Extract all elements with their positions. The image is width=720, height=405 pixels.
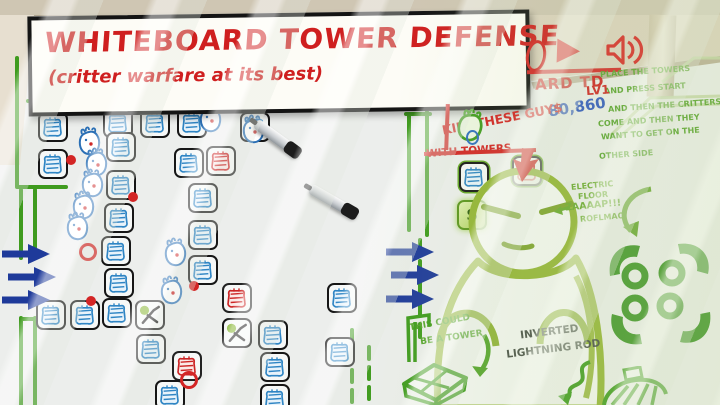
tower-scribble-icon <box>106 205 131 230</box>
game-subtitle: (critter warfare at its best) <box>48 63 323 88</box>
small-left-arrow <box>552 204 570 216</box>
entry-arrow <box>0 289 52 311</box>
squiggle-arrow <box>556 358 598 405</box>
tower-red[interactable] <box>222 283 252 313</box>
arrow-icon <box>6 266 58 288</box>
tower-slingshot[interactable] <box>222 318 252 348</box>
tower-blue[interactable] <box>104 268 134 298</box>
tower-blue[interactable] <box>258 320 288 350</box>
tower-blue[interactable] <box>38 149 68 179</box>
tower-scribble-icon <box>104 300 129 325</box>
arrow-icon <box>0 243 52 265</box>
tower-blue[interactable] <box>136 334 166 364</box>
curved-arrow-doodle <box>615 183 657 239</box>
tower-scribble-icon <box>190 257 215 282</box>
tower-scribble-icon <box>190 222 215 247</box>
slingshot-icon <box>224 320 249 345</box>
tower-scribble-icon <box>262 354 287 379</box>
game-screen: $ WHITEBOARD TOWER DEFENSE (critter warf… <box>0 0 720 405</box>
tower-blue[interactable] <box>327 283 357 313</box>
projectile-dot <box>189 281 199 291</box>
tower-scribble-icon <box>106 270 131 295</box>
tower-scribble-icon <box>138 336 163 361</box>
tower-blue[interactable] <box>38 112 68 142</box>
box-tower-doodle <box>394 356 474 405</box>
tower-scribble-icon <box>40 151 65 176</box>
tower-scribble-icon <box>224 285 249 310</box>
play-button[interactable] <box>557 39 581 64</box>
tower-blue[interactable] <box>188 183 218 213</box>
sound-icon[interactable] <box>604 33 646 67</box>
red-arrow-to-tower-button <box>508 146 542 184</box>
tower-scribble-icon <box>40 114 65 139</box>
critter <box>158 275 184 305</box>
tower-blue[interactable] <box>260 384 290 405</box>
title-banner: WHITEBOARD TOWER DEFENSE (critter warfar… <box>27 10 530 117</box>
blue-ring-doodle <box>466 130 479 145</box>
arrow-icon <box>0 289 52 311</box>
tower-scribble-icon <box>108 134 133 159</box>
tower-red[interactable] <box>206 146 236 176</box>
tower-blue[interactable] <box>174 148 204 178</box>
projectile-dot <box>79 243 97 261</box>
fan-tower-doodle <box>594 366 670 405</box>
critter-icon <box>64 211 90 241</box>
critter <box>64 211 90 241</box>
projectile-dot <box>86 296 96 306</box>
tower-scribble-icon <box>327 339 352 364</box>
tower-blue[interactable] <box>325 337 355 367</box>
entry-arrow <box>0 243 52 265</box>
tower-blue[interactable] <box>188 220 218 250</box>
tower-scribble-icon <box>72 302 97 327</box>
entry-arrow <box>6 266 58 288</box>
tower-scribble-icon <box>208 148 233 173</box>
tower-scribble-icon <box>260 322 285 347</box>
tower-blue[interactable] <box>102 298 132 328</box>
tower-blue[interactable] <box>101 236 131 266</box>
tower-scribble-icon <box>190 185 215 210</box>
tower-blue[interactable] <box>106 132 136 162</box>
projectile-dot <box>128 192 138 202</box>
pad-motif-doodle <box>602 240 718 348</box>
projectile-dot <box>66 155 76 165</box>
tower-scribble-icon <box>103 238 128 263</box>
game-title: WHITEBOARD TOWER DEFENSE <box>43 19 561 59</box>
critter-icon <box>158 275 184 305</box>
slingshot-icon <box>137 302 162 327</box>
tower-blue[interactable] <box>70 300 100 330</box>
critter-icon <box>162 237 188 267</box>
tower-scribble-icon <box>262 386 287 405</box>
tower-blue[interactable] <box>260 352 290 382</box>
tower-scribble-icon <box>329 285 354 310</box>
tower-scribble-icon <box>176 150 201 175</box>
projectile-dot <box>180 371 198 389</box>
tower-blue[interactable] <box>104 203 134 233</box>
tower-scribble-icon <box>157 382 182 405</box>
level-label: LV1 <box>586 82 611 98</box>
critter <box>162 237 188 267</box>
